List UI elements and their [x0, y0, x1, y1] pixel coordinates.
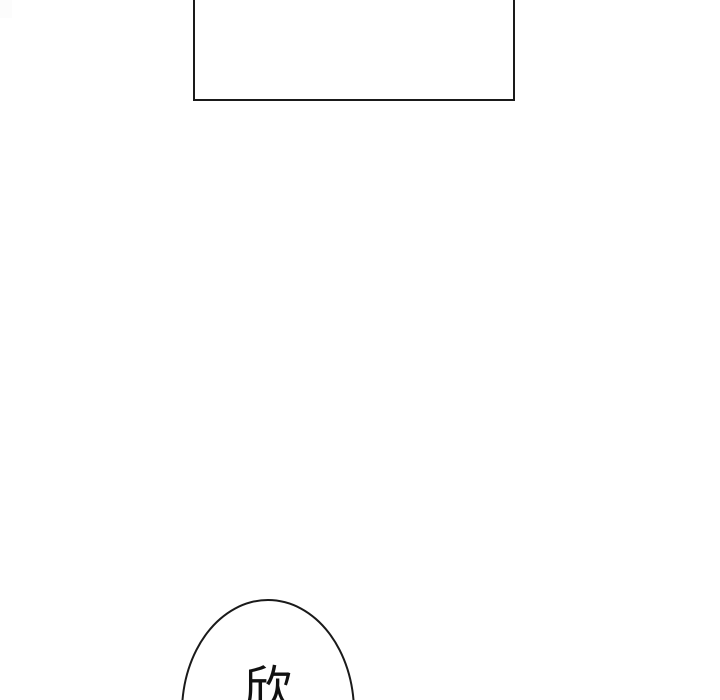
comic-panel — [193, 0, 515, 101]
comic-page: 欣 — [0, 0, 720, 700]
speech-bubble-text: 欣 — [244, 665, 292, 700]
corner-artifact — [0, 0, 12, 18]
